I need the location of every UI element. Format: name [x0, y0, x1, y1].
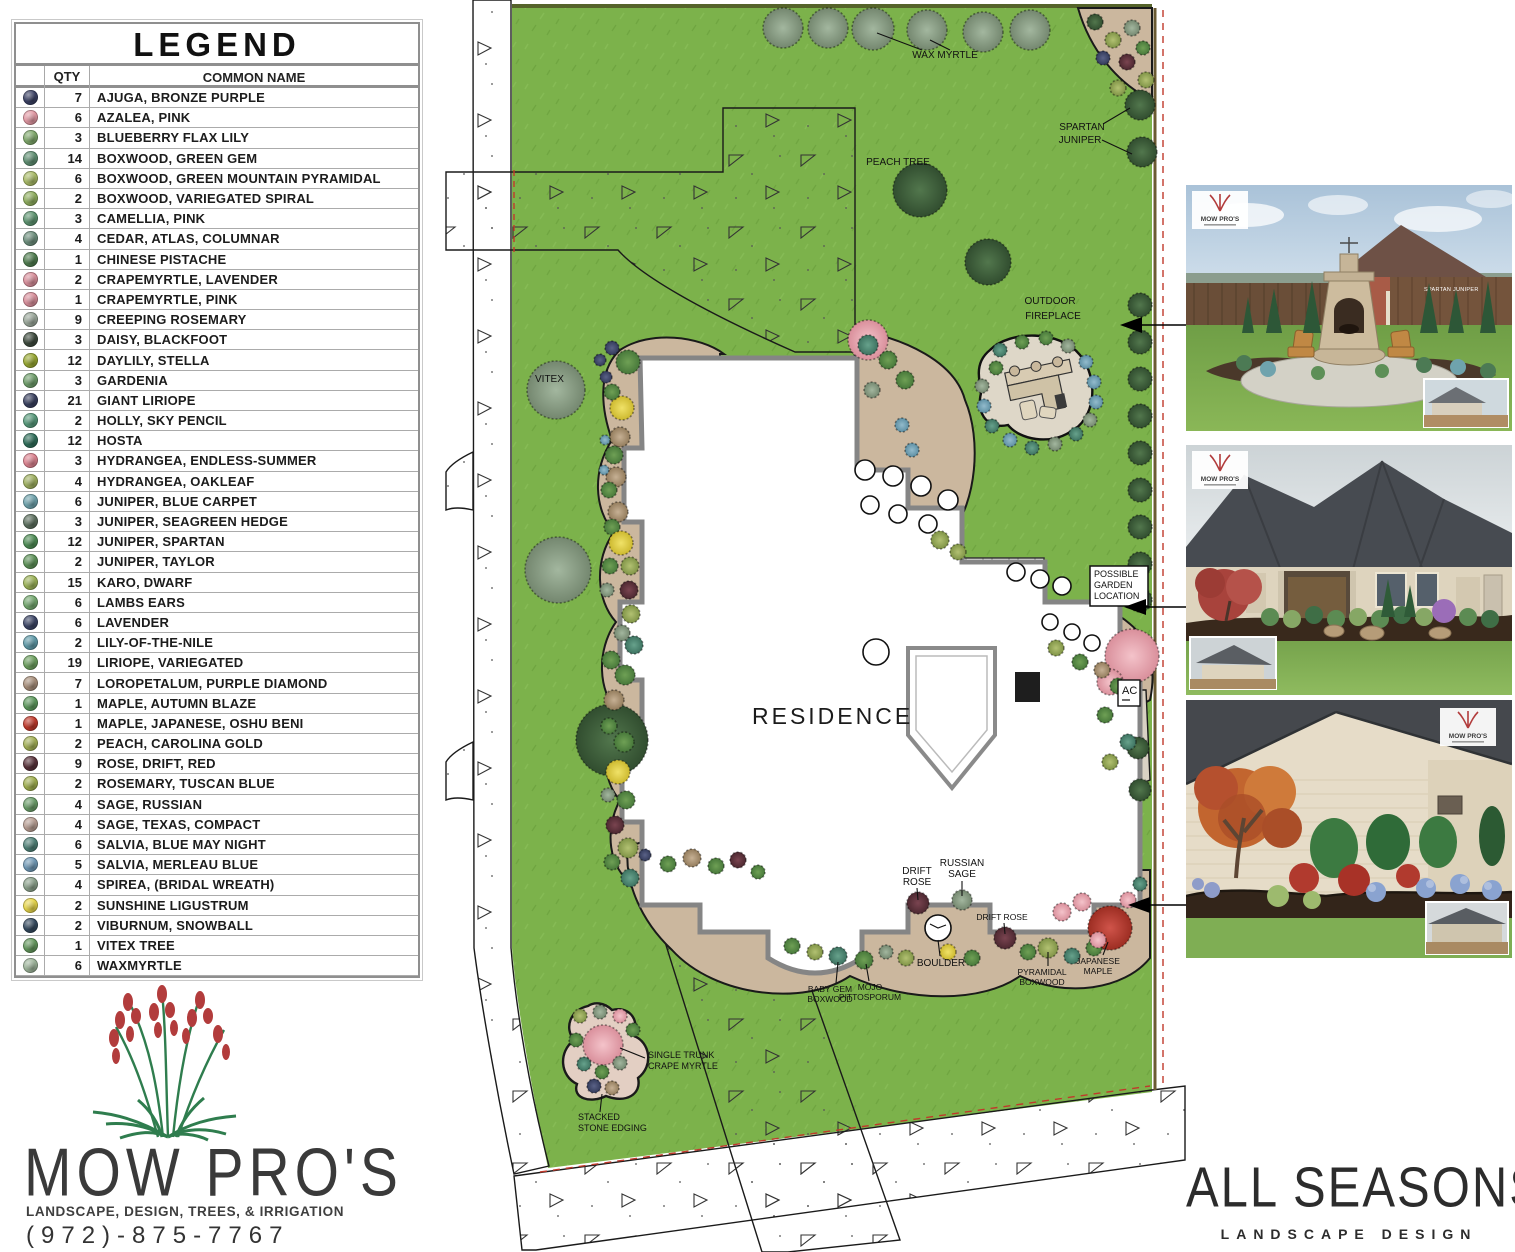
pyramidal-boxwood-label: PYRAMIDAL — [1017, 967, 1066, 977]
legend-qty: 6 — [44, 108, 90, 127]
watermark: MOW PRO'S — [1440, 708, 1496, 746]
legend-common-name: LOROPETALUM, PURPLE DIAMOND — [90, 673, 418, 692]
legend-row: 6JUNIPER, BLUE CARPET — [16, 492, 418, 512]
stacked-stone-label: STACKED — [578, 1112, 620, 1122]
legend-title: LEGEND — [16, 24, 418, 66]
legend-qty: 3 — [44, 128, 90, 147]
legend-qty: 4 — [44, 472, 90, 491]
legend-qty: 21 — [44, 391, 90, 410]
plant-symbol-icon — [16, 593, 44, 612]
russian-sage-label: RUSSIAN — [940, 858, 984, 869]
svg-text:FIREPLACE: FIREPLACE — [1025, 311, 1081, 322]
legend-qty: 1 — [44, 714, 90, 733]
legend-row: 14BOXWOOD, GREEN GEM — [16, 149, 418, 169]
legend-qty: 2 — [44, 270, 90, 289]
svg-text:MOW PRO'S: MOW PRO'S — [1201, 476, 1240, 483]
legend-common-name: SALVIA, MERLEAU BLUE — [90, 855, 418, 874]
plant-symbol-icon — [16, 774, 44, 793]
legend-common-name: BOXWOOD, GREEN MOUNTAIN PYRAMIDAL — [90, 169, 418, 188]
residence-label: RESIDENCE — [752, 703, 913, 729]
legend-qty: 6 — [44, 492, 90, 511]
legend-row: 1VITEX TREE — [16, 936, 418, 956]
legend-row: 2ROSEMARY, TUSCAN BLUE — [16, 774, 418, 794]
drift-rose-2-label: DRIFT ROSE — [976, 912, 1028, 922]
peach-tree-label: PEACH TREE — [866, 157, 930, 168]
legend-row: 6LAMBS EARS — [16, 593, 418, 613]
legend-common-name: BOXWOOD, VARIEGATED SPIRAL — [90, 189, 418, 208]
legend-common-name: JUNIPER, SPARTAN — [90, 532, 418, 551]
mow-pros-phone: (972)-875-7767 — [26, 1222, 289, 1250]
plant-symbol-icon — [16, 250, 44, 269]
plant-symbol-icon — [16, 896, 44, 915]
legend-row: 2VIBURNUM, SNOWBALL — [16, 916, 418, 936]
all-seasons-subtitle: LANDSCAPE DESIGN — [1186, 1226, 1512, 1242]
legend-row: 3BLUEBERRY FLAX LILY — [16, 128, 418, 148]
legend-name-header: COMMON NAME — [90, 70, 418, 85]
svg-text:BOXWOOD: BOXWOOD — [1019, 977, 1064, 987]
legend-qty-header: QTY — [44, 66, 90, 88]
legend-row: 7AJUGA, BRONZE PURPLE — [16, 88, 418, 108]
legend-common-name: LIRIOPE, VARIEGATED — [90, 653, 418, 672]
drift-rose-label: DRIFT — [902, 866, 931, 877]
plant-symbol-icon — [16, 149, 44, 168]
legend-qty: 7 — [44, 88, 90, 107]
single-trunk-label: SINGLE TRUNK — [648, 1050, 714, 1060]
legend-row: 9CREEPING ROSEMARY — [16, 310, 418, 330]
plant-symbol-icon — [16, 552, 44, 571]
red-yucca-logo-icon — [58, 982, 278, 1142]
legend-qty: 3 — [44, 209, 90, 228]
watermark: MOW PRO'S — [1192, 451, 1248, 489]
plant-symbol-icon — [16, 128, 44, 147]
legend-qty: 2 — [44, 734, 90, 753]
legend-qty: 3 — [44, 451, 90, 470]
plant-symbol-icon — [16, 169, 44, 188]
legend-qty: 2 — [44, 896, 90, 915]
legend-qty: 15 — [44, 573, 90, 592]
legend-row: 3GARDENIA — [16, 371, 418, 391]
legend-common-name: SAGE, TEXAS, COMPACT — [90, 815, 418, 834]
plant-symbol-icon — [16, 270, 44, 289]
legend-qty: 4 — [44, 815, 90, 834]
plant-symbol-icon — [16, 310, 44, 329]
legend-row: 2BOXWOOD, VARIEGATED SPIRAL — [16, 189, 418, 209]
svg-text:SAGE: SAGE — [948, 869, 976, 880]
plant-symbol-icon — [16, 956, 44, 975]
japanese-maple-label: JAPANESE — [1076, 956, 1120, 966]
legend-row: 9ROSE, DRIFT, RED — [16, 754, 418, 774]
legend-qty: 2 — [44, 633, 90, 652]
mojo-pittosporum — [855, 951, 873, 969]
photo-backyard-rendering: MOW PRO'S — [1186, 445, 1512, 695]
mow-pros-name: MOW PRO'S — [24, 1134, 414, 1212]
mow-pros-logo: MOW PRO'S LANDSCAPE, DESIGN, TREES, & IR… — [18, 982, 418, 1250]
legend-row: 2PEACH, CAROLINA GOLD — [16, 734, 418, 754]
svg-text:MAPLE: MAPLE — [1084, 966, 1113, 976]
legend-common-name: CREEPING ROSEMARY — [90, 310, 418, 329]
legend-common-name: BLUEBERRY FLAX LILY — [90, 128, 418, 147]
legend-common-name: JUNIPER, BLUE CARPET — [90, 492, 418, 511]
equipment-pad — [1015, 672, 1040, 702]
legend-row: 1CHINESE PISTACHE — [16, 250, 418, 270]
svg-text:AC: AC — [1122, 685, 1137, 697]
possible-garden-box: POSSIBLE GARDEN LOCATION — [1090, 566, 1148, 606]
before-inset — [1426, 902, 1508, 954]
svg-text:POSSIBLE: POSSIBLE — [1094, 569, 1139, 579]
spartan-juniper-label: SPARTAN — [1059, 122, 1105, 133]
legend-common-name: BOXWOOD, GREEN GEM — [90, 149, 418, 168]
plant-symbol-icon — [16, 573, 44, 592]
legend-common-name: DAYLILY, STELLA — [90, 350, 418, 369]
svg-text:LOCATION: LOCATION — [1094, 591, 1139, 601]
legend-row: 6AZALEA, PINK — [16, 108, 418, 128]
landscape-plan-sheet: RESIDENCE — [0, 0, 1515, 1252]
legend-common-name: VIBURNUM, SNOWBALL — [90, 916, 418, 935]
svg-text:JUNIPER: JUNIPER — [1059, 135, 1102, 146]
plant-symbol-icon — [16, 391, 44, 410]
legend-qty: 2 — [44, 189, 90, 208]
legend-row: 2JUNIPER, TAYLOR — [16, 552, 418, 572]
vitex-tree — [527, 361, 585, 419]
legend-qty: 12 — [44, 532, 90, 551]
legend-qty: 2 — [44, 411, 90, 430]
legend-qty: 6 — [44, 613, 90, 632]
legend-row: 2HOLLY, SKY PENCIL — [16, 411, 418, 431]
legend-common-name: HOLLY, SKY PENCIL — [90, 411, 418, 430]
legend-qty: 9 — [44, 310, 90, 329]
plant-symbol-icon — [16, 189, 44, 208]
legend-common-name: CEDAR, ATLAS, COLUMNAR — [90, 229, 418, 248]
legend-qty: 5 — [44, 855, 90, 874]
legend-qty: 6 — [44, 835, 90, 854]
legend-common-name: SALVIA, BLUE MAY NIGHT — [90, 835, 418, 854]
photo-outdoor-fireplace: SPARTAN JUNIPER — [1186, 185, 1512, 431]
photo1-spartan-label: SPARTAN JUNIPER — [1424, 287, 1479, 293]
plant-symbol-icon — [16, 108, 44, 127]
plant-symbol-icon — [16, 875, 44, 894]
legend-qty: 6 — [44, 956, 90, 975]
legend-common-name: ROSE, DRIFT, RED — [90, 754, 418, 773]
legend-common-name: CRAPEMYRTLE, LAVENDER — [90, 270, 418, 289]
legend-qty: 14 — [44, 149, 90, 168]
plant-symbol-icon — [16, 673, 44, 692]
legend-common-name: VITEX TREE — [90, 936, 418, 955]
legend-row: 2SUNSHINE LIGUSTRUM — [16, 896, 418, 916]
plant-symbol-icon — [16, 371, 44, 390]
legend-qty: 2 — [44, 552, 90, 571]
before-inset — [1190, 637, 1276, 689]
legend-common-name: CHINESE PISTACHE — [90, 250, 418, 269]
plant-symbol-icon — [16, 795, 44, 814]
legend-common-name: SUNSHINE LIGUSTRUM — [90, 896, 418, 915]
svg-text:PITTOSPORUM: PITTOSPORUM — [839, 992, 901, 1002]
legend-row: 1MAPLE, JAPANESE, OSHU BENI — [16, 714, 418, 734]
legend-common-name: KARO, DWARF — [90, 573, 418, 592]
legend-common-name: CAMELLIA, PINK — [90, 209, 418, 228]
plant-symbol-icon — [16, 653, 44, 672]
legend-common-name: MAPLE, AUTUMN BLAZE — [90, 694, 418, 713]
legend-common-name: SAGE, RUSSIAN — [90, 795, 418, 814]
legend-row: 15KARO, DWARF — [16, 573, 418, 593]
legend-qty: 3 — [44, 330, 90, 349]
plant-symbol-icon — [16, 492, 44, 511]
plant-symbol-icon — [16, 88, 44, 107]
legend-common-name: HYDRANGEA, OAKLEAF — [90, 472, 418, 491]
legend-row: 3CAMELLIA, PINK — [16, 209, 418, 229]
legend-row: 5SALVIA, MERLEAU BLUE — [16, 855, 418, 875]
legend-row: 3HYDRANGEA, ENDLESS-SUMMER — [16, 451, 418, 471]
plant-symbol-icon — [16, 229, 44, 248]
legend-common-name: MAPLE, JAPANESE, OSHU BENI — [90, 714, 418, 733]
legend-row: 6WAXMYRTLE — [16, 956, 418, 976]
plant-symbol-icon — [16, 431, 44, 450]
all-seasons-name: ALL SEASONS — [1186, 1156, 1512, 1220]
legend-qty: 4 — [44, 875, 90, 894]
photo-foundation-bed: MOW PRO'S — [1186, 700, 1512, 958]
legend-row: 4HYDRANGEA, OAKLEAF — [16, 472, 418, 492]
legend-row: 12HOSTA — [16, 431, 418, 451]
legend-qty: 6 — [44, 593, 90, 612]
plant-symbol-icon — [16, 714, 44, 733]
svg-text:ROSE: ROSE — [903, 877, 932, 888]
legend-qty: 12 — [44, 431, 90, 450]
svg-text:GARDEN: GARDEN — [1094, 580, 1133, 590]
svg-text:STONE EDGING: STONE EDGING — [578, 1123, 647, 1133]
before-inset — [1424, 379, 1508, 427]
legend-common-name: LILY-OF-THE-NILE — [90, 633, 418, 652]
plant-symbol-icon — [16, 815, 44, 834]
legend-qty: 2 — [44, 774, 90, 793]
legend-common-name: GIANT LIRIOPE — [90, 391, 418, 410]
atlas-cedar — [525, 537, 591, 603]
legend-rows: 7AJUGA, BRONZE PURPLE6AZALEA, PINK3BLUEB… — [16, 88, 418, 976]
legend-row: 3DAISY, BLACKFOOT — [16, 330, 418, 350]
all-seasons-brand: ALL SEASONS LANDSCAPE DESIGN — [1186, 1156, 1512, 1242]
legend-qty: 1 — [44, 250, 90, 269]
vitex-label: VITEX — [535, 374, 564, 385]
peach-tree-2 — [965, 239, 1011, 285]
legend-qty: 7 — [44, 673, 90, 692]
peach-tree — [893, 163, 947, 217]
legend-qty: 1 — [44, 936, 90, 955]
legend-row: 4SAGE, RUSSIAN — [16, 795, 418, 815]
plant-symbol-icon — [16, 330, 44, 349]
legend-common-name: PEACH, CAROLINA GOLD — [90, 734, 418, 753]
legend-common-name: JUNIPER, SEAGREEN HEDGE — [90, 512, 418, 531]
plant-symbol-icon — [16, 290, 44, 309]
legend-common-name: LAVENDER — [90, 613, 418, 632]
legend-row: 19LIRIOPE, VARIEGATED — [16, 653, 418, 673]
legend-common-name: ROSEMARY, TUSCAN BLUE — [90, 774, 418, 793]
legend-common-name: LAMBS EARS — [90, 593, 418, 612]
wax-myrtle-label: WAX MYRTLE — [912, 50, 978, 61]
legend-qty: 12 — [44, 350, 90, 369]
mow-pros-tagline: LANDSCAPE, DESIGN, TREES, & IRRIGATION — [26, 1204, 344, 1219]
legend-common-name: JUNIPER, TAYLOR — [90, 552, 418, 571]
legend-common-name: AJUGA, BRONZE PURPLE — [90, 88, 418, 107]
plant-symbol-icon — [16, 936, 44, 955]
plant-symbol-icon — [16, 472, 44, 491]
legend-common-name: GARDENIA — [90, 371, 418, 390]
mojo-label: MOJO — [858, 982, 883, 992]
watermark: MOW PRO'S — [1192, 191, 1248, 229]
legend-row: 6SALVIA, BLUE MAY NIGHT — [16, 835, 418, 855]
plant-symbol-icon — [16, 532, 44, 551]
plant-symbol-icon — [16, 512, 44, 531]
legend-qty: 4 — [44, 229, 90, 248]
legend-qty: 1 — [44, 290, 90, 309]
legend-header: QTY COMMON NAME — [16, 66, 418, 88]
legend-qty: 19 — [44, 653, 90, 672]
boulder-label: BOULDER — [917, 958, 965, 969]
legend-qty: 4 — [44, 795, 90, 814]
plant-symbol-icon — [16, 694, 44, 713]
legend-qty: 1 — [44, 694, 90, 713]
plant-symbol-icon — [16, 855, 44, 874]
legend-common-name: AZALEA, PINK — [90, 108, 418, 127]
svg-text:MOW PRO'S: MOW PRO'S — [1201, 216, 1240, 223]
plant-symbol-icon — [16, 613, 44, 632]
legend-row: 6BOXWOOD, GREEN MOUNTAIN PYRAMIDAL — [16, 169, 418, 189]
plant-symbol-icon — [16, 734, 44, 753]
plant-symbol-icon — [16, 209, 44, 228]
legend-row: 4SAGE, TEXAS, COMPACT — [16, 815, 418, 835]
svg-text:CRAPE MYRTLE: CRAPE MYRTLE — [648, 1061, 718, 1071]
legend-row: 12JUNIPER, SPARTAN — [16, 532, 418, 552]
plant-symbol-icon — [16, 411, 44, 430]
plant-symbol-icon — [16, 633, 44, 652]
legend-row: 1MAPLE, AUTUMN BLAZE — [16, 694, 418, 714]
plant-symbol-icon — [16, 916, 44, 935]
legend-qty: 3 — [44, 371, 90, 390]
legend-common-name: CRAPEMYRTLE, PINK — [90, 290, 418, 309]
svg-text:MOW PRO'S: MOW PRO'S — [1449, 733, 1488, 740]
outdoor-fireplace-label: OUTDOOR — [1024, 296, 1075, 307]
legend-row: 1CRAPEMYRTLE, PINK — [16, 290, 418, 310]
legend-common-name: HOSTA — [90, 431, 418, 450]
legend-row: 4SPIREA, (BRIDAL WREATH) — [16, 875, 418, 895]
legend-common-name: WAXMYRTLE — [90, 956, 418, 975]
legend-row: 6LAVENDER — [16, 613, 418, 633]
legend-panel: LEGEND QTY COMMON NAME 7AJUGA, BRONZE PU… — [14, 22, 420, 978]
legend-common-name: DAISY, BLACKFOOT — [90, 330, 418, 349]
plant-symbol-icon — [16, 350, 44, 369]
legend-row: 2LILY-OF-THE-NILE — [16, 633, 418, 653]
legend-qty: 6 — [44, 169, 90, 188]
legend-row: 12DAYLILY, STELLA — [16, 350, 418, 370]
legend-row: 21GIANT LIRIOPE — [16, 391, 418, 411]
legend-qty: 2 — [44, 916, 90, 935]
legend-qty: 9 — [44, 754, 90, 773]
ac-box: AC — [1118, 680, 1140, 706]
legend-common-name: SPIREA, (BRIDAL WREATH) — [90, 875, 418, 894]
legend-row: 7LOROPETALUM, PURPLE DIAMOND — [16, 673, 418, 693]
legend-qty: 3 — [44, 512, 90, 531]
legend-row: 3JUNIPER, SEAGREEN HEDGE — [16, 512, 418, 532]
legend-common-name: HYDRANGEA, ENDLESS-SUMMER — [90, 451, 418, 470]
plant-symbol-icon — [16, 451, 44, 470]
plant-symbol-icon — [16, 754, 44, 773]
legend-row: 4CEDAR, ATLAS, COLUMNAR — [16, 229, 418, 249]
legend-row: 2CRAPEMYRTLE, LAVENDER — [16, 270, 418, 290]
plant-symbol-icon — [16, 835, 44, 854]
